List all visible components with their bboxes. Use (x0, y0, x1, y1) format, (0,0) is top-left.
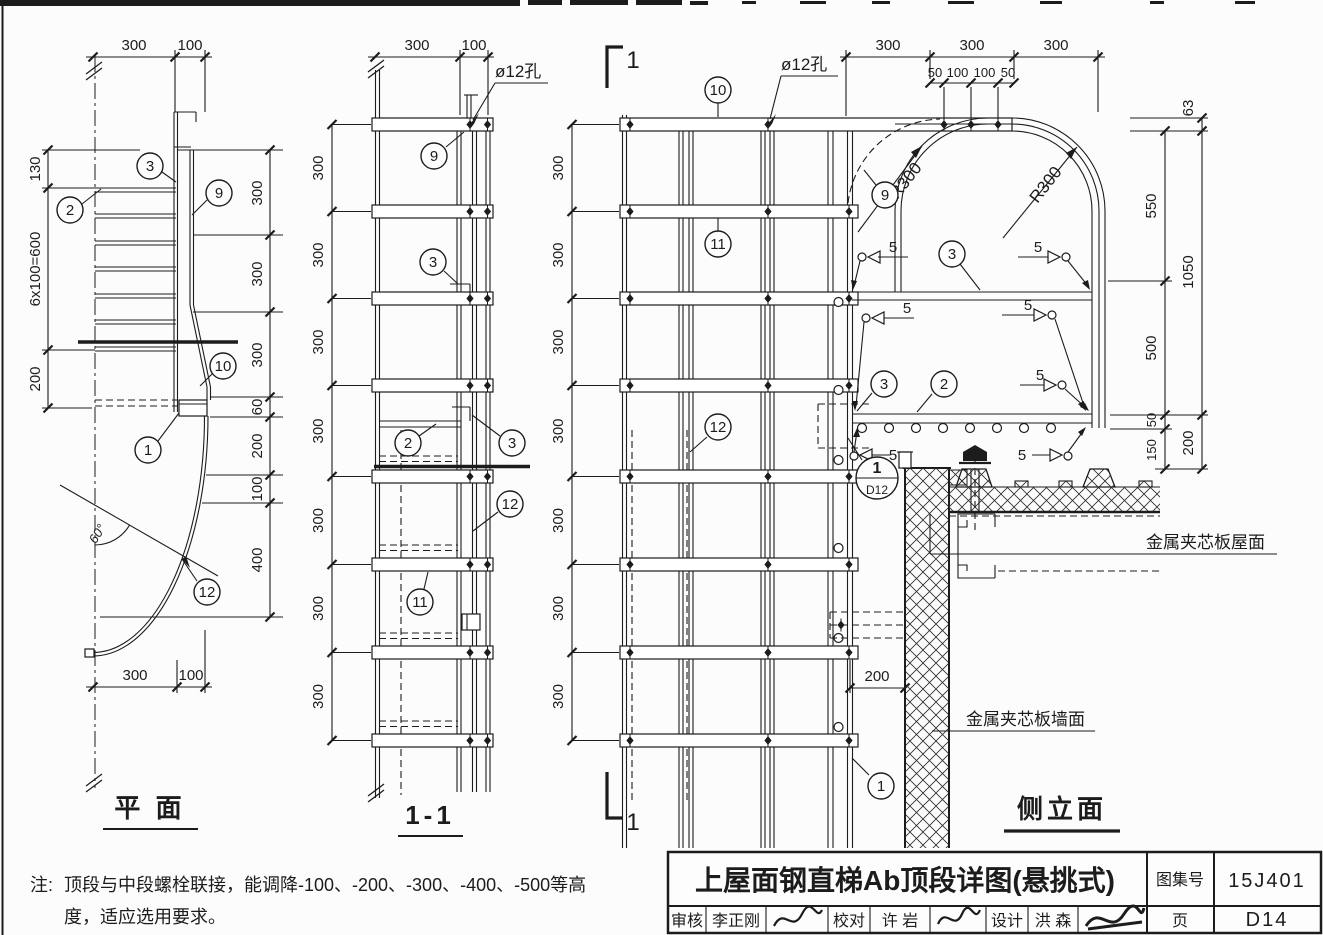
elevation-title: 侧立面 (1017, 794, 1107, 824)
callout-1: 1 (144, 442, 152, 459)
elevation-brackets (818, 404, 906, 638)
plan-dim: 300 (121, 37, 146, 54)
section-rails (376, 70, 491, 798)
elev-dim: 150 (1144, 439, 1159, 461)
callout-12: 12 (710, 419, 727, 436)
plan-dim: 300 (249, 261, 266, 286)
elev-dim: 200 (1180, 430, 1197, 455)
elev-dim: 300 (550, 596, 567, 621)
elev-dim: 300 (959, 37, 984, 54)
callout-9: 9 (881, 187, 889, 204)
plan-dim: 60 (249, 399, 266, 416)
elev-dim: 1050 (1180, 255, 1197, 288)
roof-label-group: 金属夹芯板屋面 (930, 514, 1277, 554)
plan-title: 平 面 (114, 793, 185, 823)
design-label: 设计 (991, 912, 1023, 930)
svg-text:5: 5 (1024, 297, 1032, 314)
check-label: 校对 (833, 912, 865, 930)
plan-dim: 100 (177, 37, 202, 54)
plan-dim: 200 (249, 433, 266, 458)
callout-3: 3 (146, 158, 154, 175)
design-name: 洪 森 (1035, 912, 1071, 930)
plan-rungs (95, 188, 178, 406)
atlas-label: 图集号 (1156, 871, 1204, 889)
callout-12: 12 (502, 496, 519, 513)
callout-9: 9 (430, 148, 438, 165)
callout-9: 9 (215, 185, 223, 202)
plan-dim: 200 (27, 366, 44, 391)
section-left-dims: 300 300 300 300 300 300 300 (310, 120, 371, 745)
hole-label: ø12孔 (781, 55, 827, 74)
section-dim: 300 (310, 508, 327, 533)
section-dim: 100 (461, 37, 486, 54)
note-line1: 顶段与中段螺栓联接，能调降-100、-200、-300、-400、-500等高 (64, 875, 586, 895)
audit-name: 李正刚 (712, 912, 760, 930)
elev-dim: 100 (947, 65, 969, 80)
elev-dim: 300 (550, 418, 567, 443)
elev-dim: 300 (875, 37, 900, 54)
elev-dim: 300 (550, 684, 567, 709)
section-dim: 300 (310, 596, 327, 621)
plan-dim: 6x100=600 (27, 232, 44, 307)
wall-label-group: 金属夹芯板墙面 (932, 710, 1095, 731)
callout-2: 2 (940, 376, 948, 393)
check-name: 许 岩 (882, 912, 918, 930)
page-number: D14 (1246, 909, 1289, 931)
plan-dim: 300 (249, 342, 266, 367)
note-line2: 度，适应选用要求。 (64, 907, 226, 927)
callout-10: 10 (215, 358, 232, 375)
elev-dim: 100 (974, 65, 996, 80)
svg-text:5: 5 (1018, 447, 1026, 464)
callout-3b: 3 (508, 435, 516, 452)
detail-number: 1 (873, 460, 882, 477)
plan-dim: 130 (27, 156, 44, 181)
callout-3: 3 (948, 246, 956, 263)
elevation-left-dims: 300 300 300 300 300 300 300 (550, 120, 619, 745)
svg-text:5: 5 (889, 239, 897, 256)
audit-label: 审核 (671, 912, 703, 930)
plan-dim: 300 (122, 667, 147, 684)
elevation-right-dims: 550 500 50 150 63 1050 200 (1108, 100, 1208, 474)
elev-dim: 300 (550, 508, 567, 533)
section-dim: 300 (310, 242, 327, 267)
marker-label: 1 (626, 47, 639, 74)
elev-dim: 300 (550, 242, 567, 267)
callout-2: 2 (66, 202, 74, 219)
elevation-r300-right: R300 (1003, 147, 1077, 238)
wall-label: 金属夹芯板墙面 (966, 710, 1085, 729)
radius-label: R300 (1026, 163, 1066, 207)
wall-dim: 200 (864, 668, 889, 685)
section-dim: 300 (310, 684, 327, 709)
atlas-number: 15J401 (1228, 870, 1306, 892)
plan-view: 300 100 130 6x100=600 200 300 300 300 60… (27, 37, 283, 829)
plan-dim: 400 (249, 547, 266, 572)
plan-dim: 100 (178, 667, 203, 684)
plan-dim: 100 (249, 476, 266, 501)
note-block: 注: 顶段与中段螺栓联接，能调降-100、-200、-300、-400、-500… (30, 875, 586, 927)
svg-text:5: 5 (903, 300, 911, 317)
elevation-wall-dim: 200 (846, 660, 910, 693)
plan-stringer (174, 112, 211, 416)
callout-3: 3 (429, 254, 437, 271)
marker-label: 1 (626, 809, 639, 836)
callout-11: 11 (710, 236, 726, 253)
weld-1: 5 (851, 239, 908, 290)
weld-2: 5 (1018, 239, 1090, 290)
roof-label: 金属夹芯板屋面 (1146, 533, 1265, 552)
callout-1: 1 (877, 778, 885, 795)
section-dim: 300 (404, 37, 429, 54)
elev-dim: 63 (1180, 100, 1197, 117)
elevation-view: R300 R300 5 5 5 5 5 5 5 1 D12 200 (550, 37, 1277, 848)
callout-3b: 3 (880, 376, 888, 393)
plan-angle-label: 60° (86, 521, 109, 546)
section-marker-bottom: 1 (607, 772, 640, 836)
title-block: 上屋面钢直梯Ab顶段详图(悬挑式) 图集号 15J401 审核 李正刚 校对 许… (668, 852, 1321, 933)
page-label: 页 (1172, 913, 1188, 930)
section-title: 1-1 (405, 800, 455, 830)
section-dim: 300 (310, 418, 327, 443)
elev-dim: 300 (550, 329, 567, 354)
elev-dim: 50 (1144, 413, 1159, 427)
elev-dim: 50 (928, 65, 942, 80)
section-hole-label: ø12孔 (470, 62, 548, 124)
svg-text:5: 5 (1036, 367, 1044, 384)
section-dim: 300 (310, 155, 327, 180)
elevation-top-dims: 300 300 300 50 100 100 50 (840, 37, 1105, 120)
elev-dim: 300 (1043, 37, 1068, 54)
svg-text:5: 5 (1034, 239, 1042, 256)
callout-10: 10 (710, 82, 727, 99)
drawing-sheet: 300 100 130 6x100=600 200 300 300 300 60… (0, 0, 1323, 935)
section-dim: 300 (310, 329, 327, 354)
weld-4: 5 (1002, 297, 1086, 411)
plan-dim: 300 (249, 180, 266, 205)
section-rung-bands (372, 118, 493, 747)
section-marker-top: 1 (607, 47, 640, 88)
section-1-1: 300 100 300 300 300 300 3 (310, 37, 640, 836)
elev-dim: 300 (550, 155, 567, 180)
elevation-rung-bands (620, 205, 858, 747)
drawing-title: 上屋面钢直梯Ab顶段详图(悬挑式) (695, 864, 1115, 896)
elevation-hole-label: ø12孔 (768, 55, 838, 124)
callout-12: 12 (199, 584, 216, 601)
elev-dim: 50 (1001, 65, 1015, 80)
elev-dim: 500 (1143, 335, 1160, 360)
detail-sheet: D12 (866, 483, 888, 497)
note-prefix: 注: (30, 875, 53, 895)
hole-label: ø12孔 (495, 62, 541, 81)
drawing-canvas: 300 100 130 6x100=600 200 300 300 300 60… (0, 0, 1323, 935)
elev-dim: 550 (1143, 193, 1160, 218)
roof-panel (949, 445, 1160, 578)
elevation-bolt-holes (834, 298, 843, 732)
callout-2: 2 (404, 435, 412, 452)
callout-11: 11 (412, 594, 428, 611)
wall-panel (897, 452, 951, 848)
